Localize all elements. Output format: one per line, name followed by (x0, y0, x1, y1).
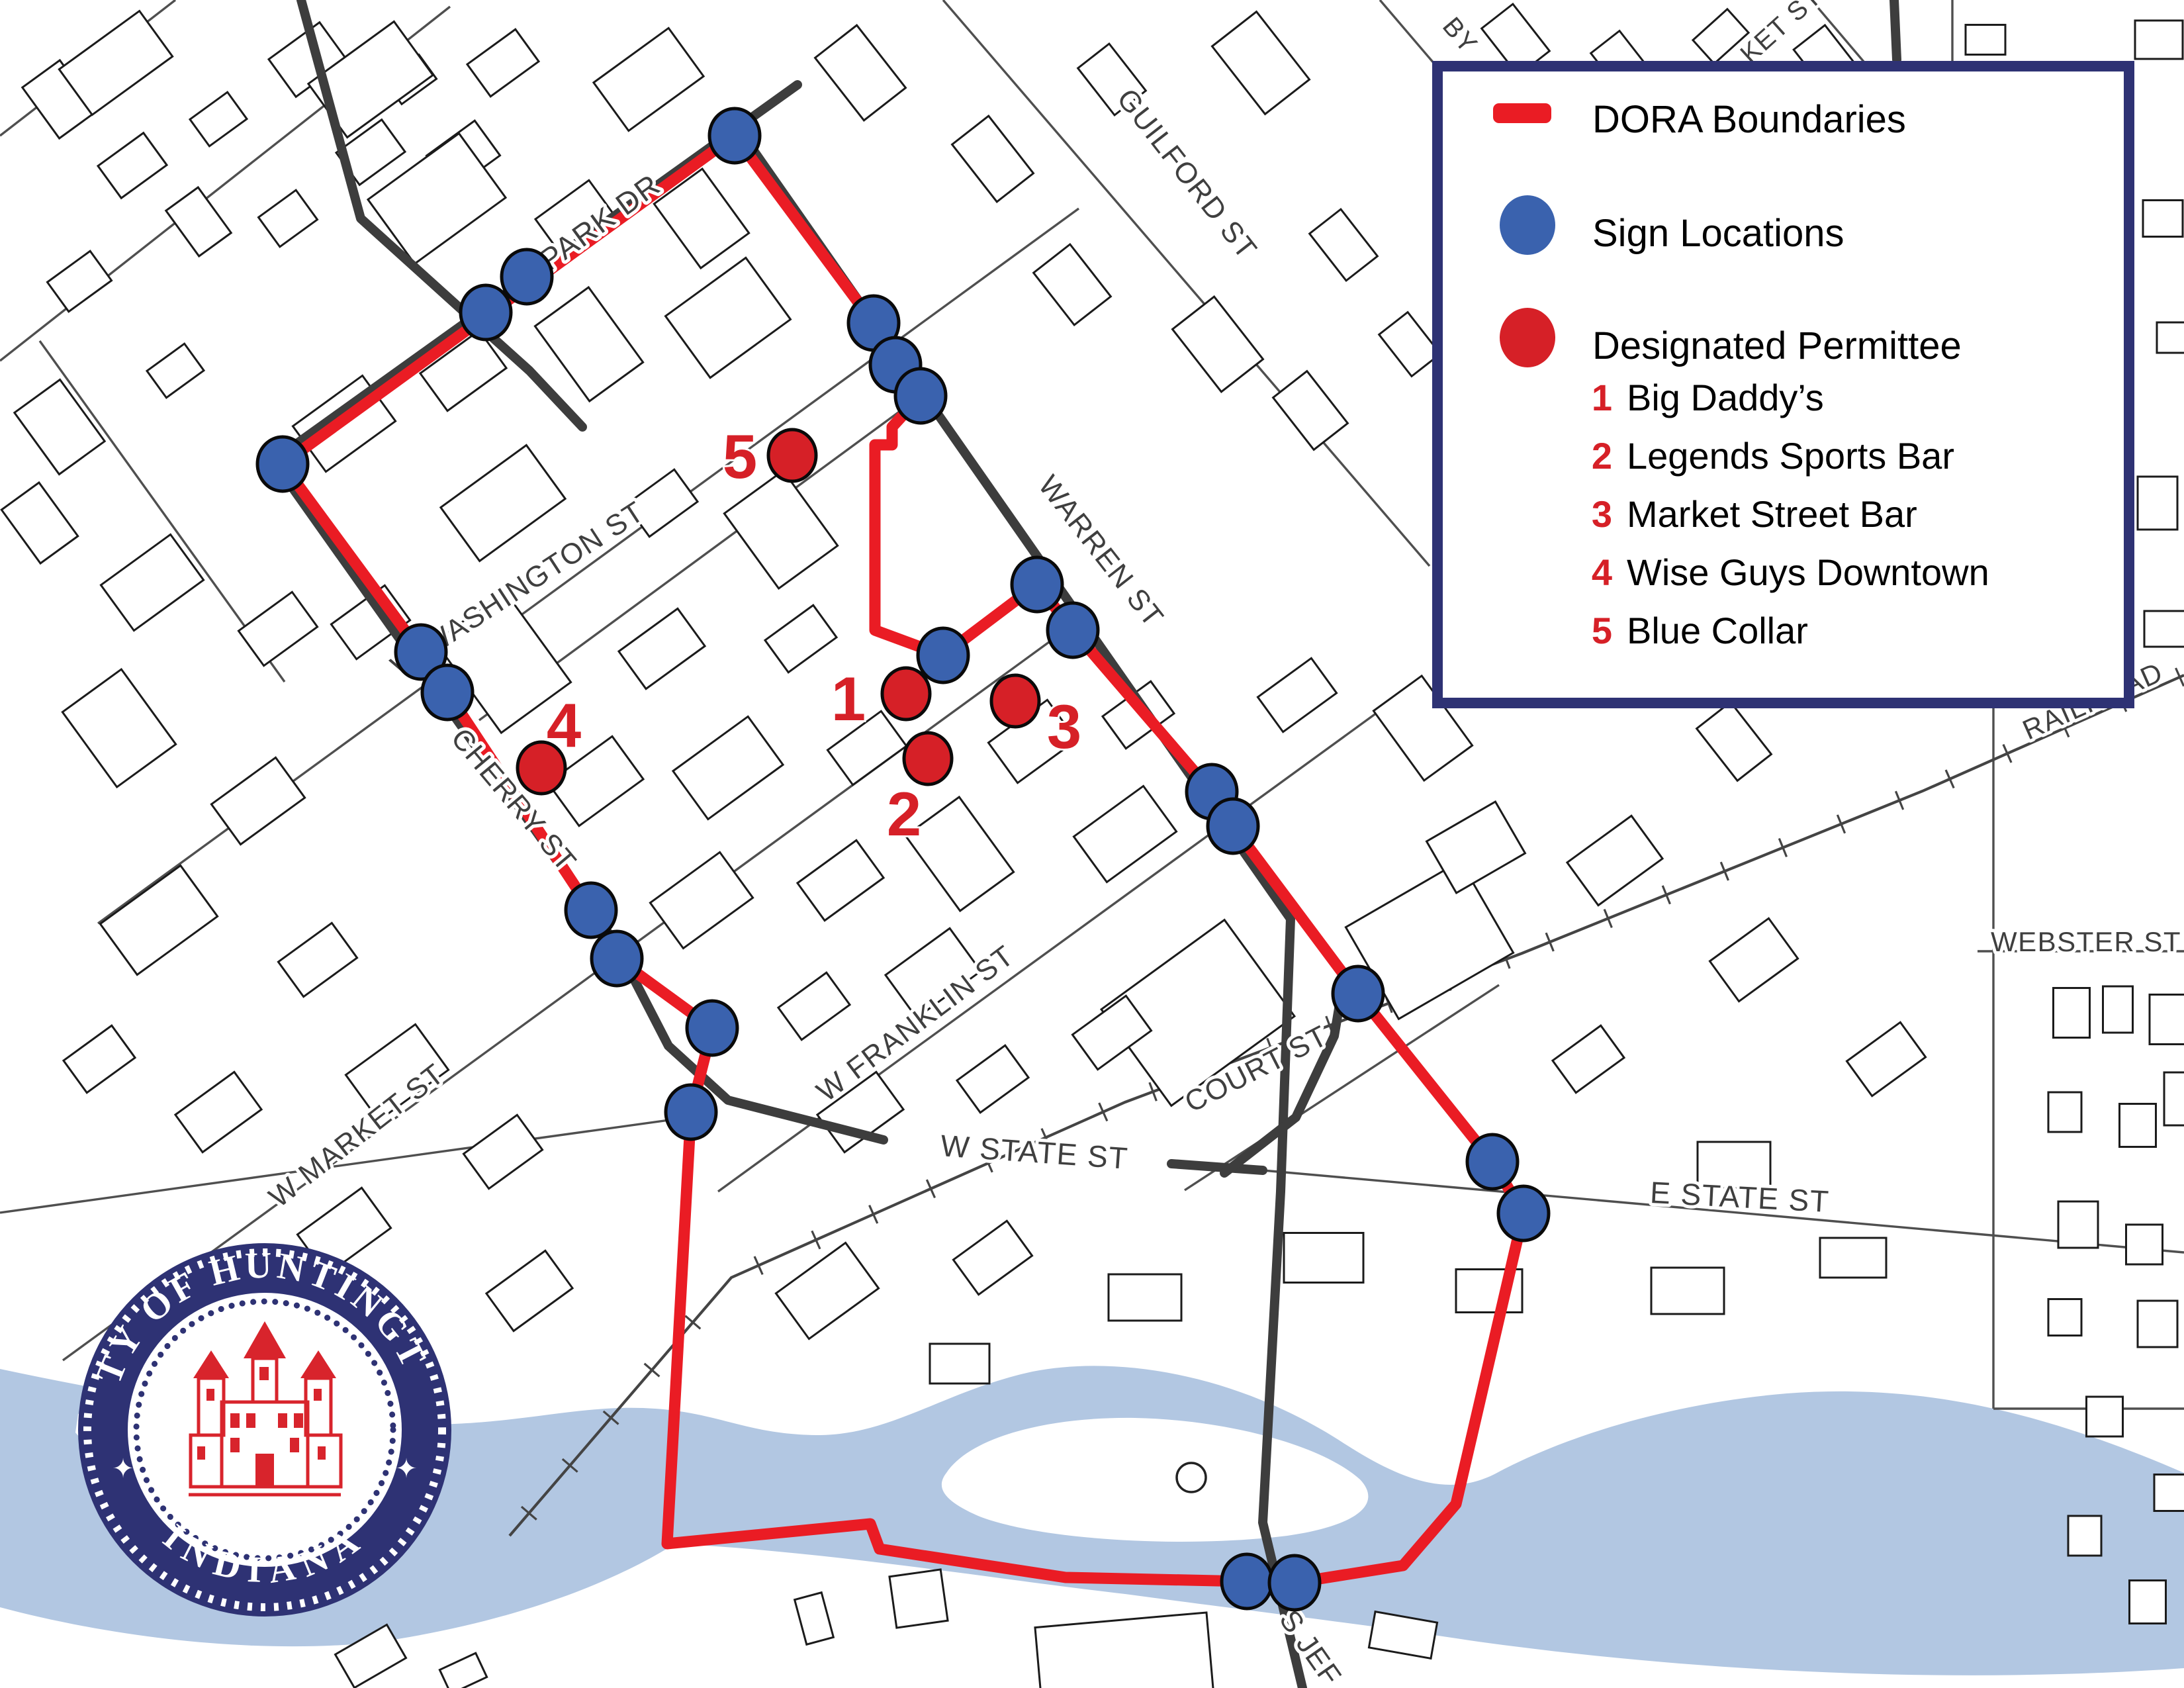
building-footprint (2048, 1299, 2081, 1336)
building-footprint (2058, 1201, 2098, 1248)
building-footprint (2068, 1516, 2101, 1556)
legend-permittee-name: Wise Guys Downtown (1627, 551, 1989, 593)
seal-separator-left: ✦ (112, 1454, 134, 1483)
permittee-number-label: 4 (547, 690, 581, 760)
permittee-number-label: 2 (887, 779, 921, 849)
building-footprint (2126, 1225, 2163, 1264)
sign-location-icon (1500, 195, 1555, 255)
sign-location-dot (461, 285, 511, 340)
building-footprint (2154, 1475, 2184, 1511)
building-footprint (2150, 995, 2184, 1045)
main-road (1171, 1164, 1263, 1170)
building-footprint (2087, 1397, 2123, 1436)
permittee-number-label: 3 (1047, 692, 1081, 761)
sign-location-dot (1467, 1135, 1518, 1189)
sign-location-dot (1333, 966, 1383, 1021)
sign-location-dot (1498, 1186, 1549, 1241)
legend-permittee-number: 3 (1592, 493, 1612, 535)
legend-permittee-name: Blue Collar (1627, 610, 1808, 651)
building-footprint (2138, 477, 2177, 530)
designated-permittee-icon (1500, 308, 1555, 367)
building-footprint (1966, 25, 2005, 55)
sign-location-dot (1222, 1554, 1272, 1609)
sign-location-dot (1048, 603, 1098, 657)
legend-label-dora-boundaries: DORA Boundaries (1592, 98, 1906, 141)
legend-permittee-number: 1 (1592, 377, 1612, 418)
sign-location-dot (1208, 799, 1258, 853)
building-footprint (1284, 1233, 1363, 1283)
seal-separator-right: ✦ (395, 1454, 418, 1483)
legend-label-designated-permittee: Designated Permittee (1592, 324, 1962, 367)
legend-permittee-number: 4 (1592, 551, 1612, 593)
permittee-number-label: 1 (831, 664, 866, 733)
dora-map-page: E PARK DRGUILFORD STW WASHINGTON STWARRE… (0, 0, 2184, 1688)
dora-boundary-dash-icon (1493, 103, 1551, 123)
sign-location-dot (502, 250, 552, 304)
designated-permittee-dot (882, 668, 930, 720)
building-footprint (2157, 322, 2184, 353)
sign-location-dot (687, 1001, 737, 1055)
building-footprint (1109, 1274, 1181, 1321)
permittee-number-label: 5 (723, 422, 757, 491)
designated-permittee-dot (904, 733, 952, 784)
sign-location-dot (422, 665, 473, 720)
legend-permittee-number: 2 (1592, 435, 1612, 477)
dora-map: E PARK DRGUILFORD STW WASHINGTON STWARRE… (0, 0, 2184, 1688)
building-footprint (930, 1344, 989, 1383)
legend-permittee-name: Big Daddy’s (1627, 377, 1824, 418)
legend-permittee-name: Legends Sports Bar (1627, 435, 1954, 477)
sign-location-dot (895, 369, 946, 423)
building-footprint (2143, 201, 2183, 237)
legend-permittee-name: Market Street Bar (1627, 493, 1917, 535)
building-footprint (2048, 1092, 2081, 1132)
building-footprint (2120, 1104, 2156, 1147)
building-footprint (2138, 1301, 2177, 1347)
building-footprint (2135, 21, 2183, 59)
sign-location-dot (709, 109, 760, 163)
legend: DORA Boundaries Sign Locations Designate… (1437, 66, 2129, 703)
sign-location-dot (257, 437, 308, 491)
building-footprint (2144, 611, 2184, 647)
sign-location-dot (666, 1085, 716, 1139)
building-footprint (2164, 1072, 2184, 1125)
main-road (1894, 0, 1897, 60)
building-footprint (2103, 986, 2133, 1033)
sign-location-dot (1269, 1556, 1320, 1610)
street-label: WEBSTER ST (1991, 926, 2181, 957)
building-footprint (2130, 1581, 2166, 1624)
sign-location-dot (566, 883, 616, 937)
designated-permittee-dot (991, 675, 1039, 727)
sign-location-dot (592, 931, 642, 986)
legend-label-sign-locations: Sign Locations (1592, 212, 1844, 255)
sign-location-dot (1012, 557, 1062, 612)
building-footprint (889, 1570, 948, 1628)
designated-permittee-dot (768, 430, 816, 481)
sign-location-dot (918, 628, 968, 682)
legend-permittee-number: 5 (1592, 610, 1612, 651)
building-footprint (1820, 1238, 1886, 1278)
building-footprint (1651, 1268, 1724, 1314)
building-footprint (2054, 988, 2090, 1038)
pond (1177, 1463, 1206, 1492)
